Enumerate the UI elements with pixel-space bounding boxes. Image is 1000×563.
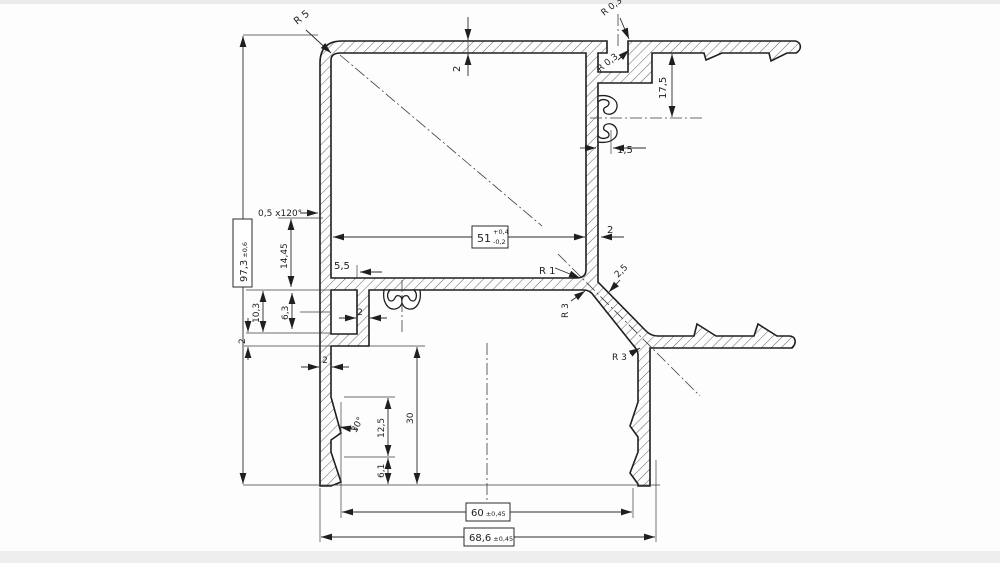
svg-text:-0,2: -0,2 [493,238,506,246]
svg-text:5,5: 5,5 [334,261,350,272]
profile-outline [320,41,800,486]
svg-text:30°: 30° [350,416,366,435]
dim-10-3: 10,3 [252,291,263,332]
dim-30: 30 [406,347,417,484]
dim-6-3: 6,3 [281,293,292,329]
dim-14-45: 14,45 [280,219,291,287]
svg-text:68,6±0,45: 68,6±0,45 [469,533,513,544]
scan-band-bottom [0,551,1000,563]
scan-band-top [0,0,1000,4]
svg-text:R 3: R 3 [612,353,627,363]
profile-section-drawing: R 5 2 R 0,3 R 0,3 17,5 1,5 0,5 x120° 9 [0,0,1000,563]
dim-68-6: 68,6±0,45 [321,528,655,546]
screw-port-hook-right-bottom [402,290,421,309]
dim-overall-height-97-3: 97,3±0,6 [233,36,252,484]
svg-text:R 3: R 3 [561,303,571,318]
svg-text:2: 2 [452,66,463,72]
thickness-dim-diagonal-2-5: 2,5 [609,263,630,292]
dim-12-5: 12,5 [377,398,388,456]
svg-text:0,5 x120°: 0,5 x120° [258,209,302,219]
chamfer-note: 0,5 x120° [258,209,318,219]
svg-text:97,3±0,6: 97,3±0,6 [239,242,250,282]
svg-text:2: 2 [238,338,248,344]
screw-port-hook-upper-right [598,96,617,115]
radius-dim-r3-upper: R 3 [561,291,585,318]
svg-text:+0,4: +0,4 [493,228,509,236]
svg-text:6,3: 6,3 [281,306,291,320]
svg-text:51: 51 [477,232,491,245]
radius-dim-r03-upper: R 0,3 [600,0,629,39]
svg-text:12,5: 12,5 [377,418,387,438]
radius-dim-r1: R 1 [539,266,580,278]
dim-17-5: 17,5 [658,54,672,117]
thickness-dim-right-wall: 2 [601,225,624,237]
extrusion-profile-body [320,41,800,486]
dim-5-5: 5,5 [334,261,382,272]
screw-port-hook-lower-right [598,124,617,143]
svg-text:2: 2 [322,356,328,366]
technical-drawing-page: R 5 2 R 0,3 R 0,3 17,5 1,5 0,5 x120° 9 [0,0,1000,563]
svg-text:17,5: 17,5 [658,77,669,99]
screw-port-hook-left-bottom [384,290,403,309]
svg-text:60±0,45: 60±0,45 [471,508,506,519]
svg-text:6,1: 6,1 [377,464,387,478]
svg-text:R 1: R 1 [539,266,556,277]
svg-text:30: 30 [406,412,416,424]
dim-60: 60±0,45 [342,503,632,521]
svg-text:R 0,3: R 0,3 [596,52,621,74]
svg-text:R 5: R 5 [292,9,312,28]
svg-text:2,5: 2,5 [613,263,630,280]
svg-text:10,3: 10,3 [252,303,262,323]
angle-dim-30deg: 30° [340,416,366,435]
thickness-dim-left-wall: 2 [301,356,349,367]
dim-6-1: 6,1 [377,458,388,484]
svg-text:14,45: 14,45 [280,243,290,269]
radius-dim-r3-lower: R 3 [612,348,640,363]
dim-inner-width-51: 51 +0,4 -0,2 [333,226,585,248]
svg-text:2: 2 [607,225,613,236]
svg-text:1,5: 1,5 [617,145,633,156]
svg-text:2: 2 [357,308,363,318]
